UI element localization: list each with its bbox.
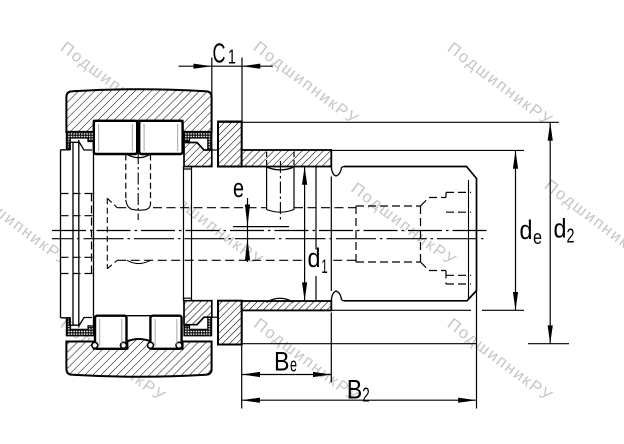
svg-text:1: 1 (228, 47, 236, 69)
svg-text:B: B (274, 346, 290, 376)
svg-text:d: d (520, 215, 533, 245)
svg-text:e: e (290, 355, 297, 377)
svg-text:e: e (233, 173, 244, 203)
svg-text:C: C (213, 38, 226, 69)
svg-text:d: d (554, 213, 567, 243)
svg-text:2: 2 (567, 225, 575, 247)
svg-text:1: 1 (321, 257, 328, 278)
svg-text:B: B (347, 375, 363, 405)
svg-text:e: e (533, 227, 542, 249)
svg-text:d: d (308, 243, 321, 273)
svg-text:2: 2 (362, 384, 370, 406)
